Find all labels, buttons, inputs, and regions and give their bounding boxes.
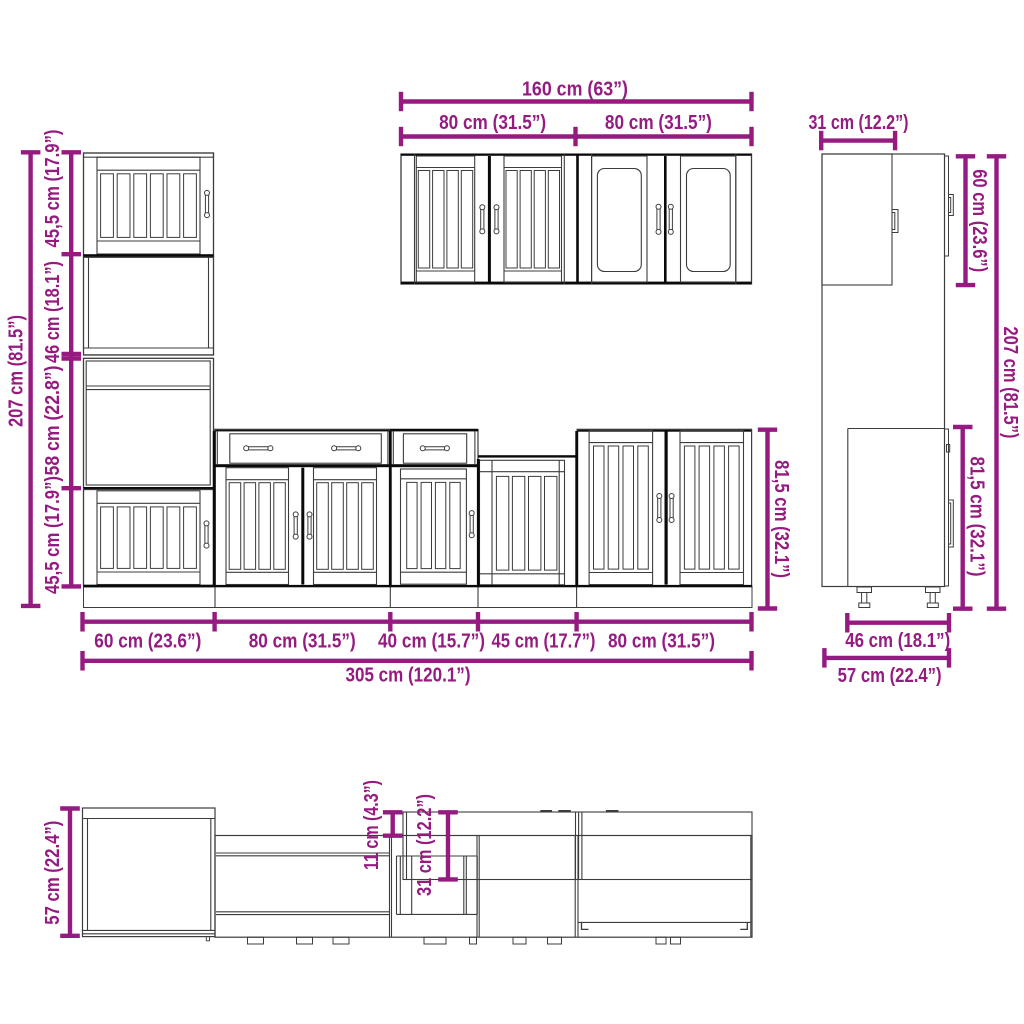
svg-text:46 cm (18.1”): 46 cm (18.1”) bbox=[41, 261, 64, 363]
svg-text:80 cm (31.5”): 80 cm (31.5”) bbox=[605, 111, 712, 134]
svg-text:80 cm (31.5”): 80 cm (31.5”) bbox=[439, 111, 546, 134]
svg-text:58 cm (22.8”): 58 cm (22.8”) bbox=[41, 366, 64, 476]
svg-text:57 cm (22.4”): 57 cm (22.4”) bbox=[838, 664, 942, 687]
svg-text:81,5 cm (32.1”): 81,5 cm (32.1”) bbox=[966, 457, 989, 577]
svg-text:305 cm (120.1”): 305 cm (120.1”) bbox=[346, 663, 471, 686]
svg-text:45 cm (17.7”): 45 cm (17.7”) bbox=[492, 629, 596, 652]
svg-text:45,5 cm (17.9”): 45,5 cm (17.9”) bbox=[41, 130, 64, 248]
svg-text:81,5 cm (32.1”): 81,5 cm (32.1”) bbox=[770, 460, 793, 578]
svg-text:207 cm (81.5”): 207 cm (81.5”) bbox=[999, 327, 1022, 439]
svg-text:31 cm (12.2”): 31 cm (12.2”) bbox=[413, 794, 436, 896]
svg-text:207 cm (81.5”): 207 cm (81.5”) bbox=[5, 315, 28, 427]
svg-text:40 cm (15.7”): 40 cm (15.7”) bbox=[378, 629, 485, 652]
svg-text:31 cm (12.2”): 31 cm (12.2”) bbox=[809, 111, 909, 134]
svg-text:80 cm (31.5”): 80 cm (31.5”) bbox=[249, 629, 356, 652]
svg-text:45,5 cm (17.9”): 45,5 cm (17.9”) bbox=[41, 476, 64, 594]
svg-text:11 cm (4.3”): 11 cm (4.3”) bbox=[360, 780, 383, 870]
svg-text:80 cm (31.5”): 80 cm (31.5”) bbox=[608, 629, 715, 652]
svg-text:46 cm (18.1”): 46 cm (18.1”) bbox=[845, 629, 950, 652]
svg-text:57 cm (22.4”): 57 cm (22.4”) bbox=[41, 821, 64, 925]
svg-text:60 cm (23.6”): 60 cm (23.6”) bbox=[94, 629, 201, 652]
svg-text:160 cm (63”): 160 cm (63”) bbox=[522, 78, 628, 101]
svg-text:60 cm (23.6”): 60 cm (23.6”) bbox=[968, 169, 991, 272]
